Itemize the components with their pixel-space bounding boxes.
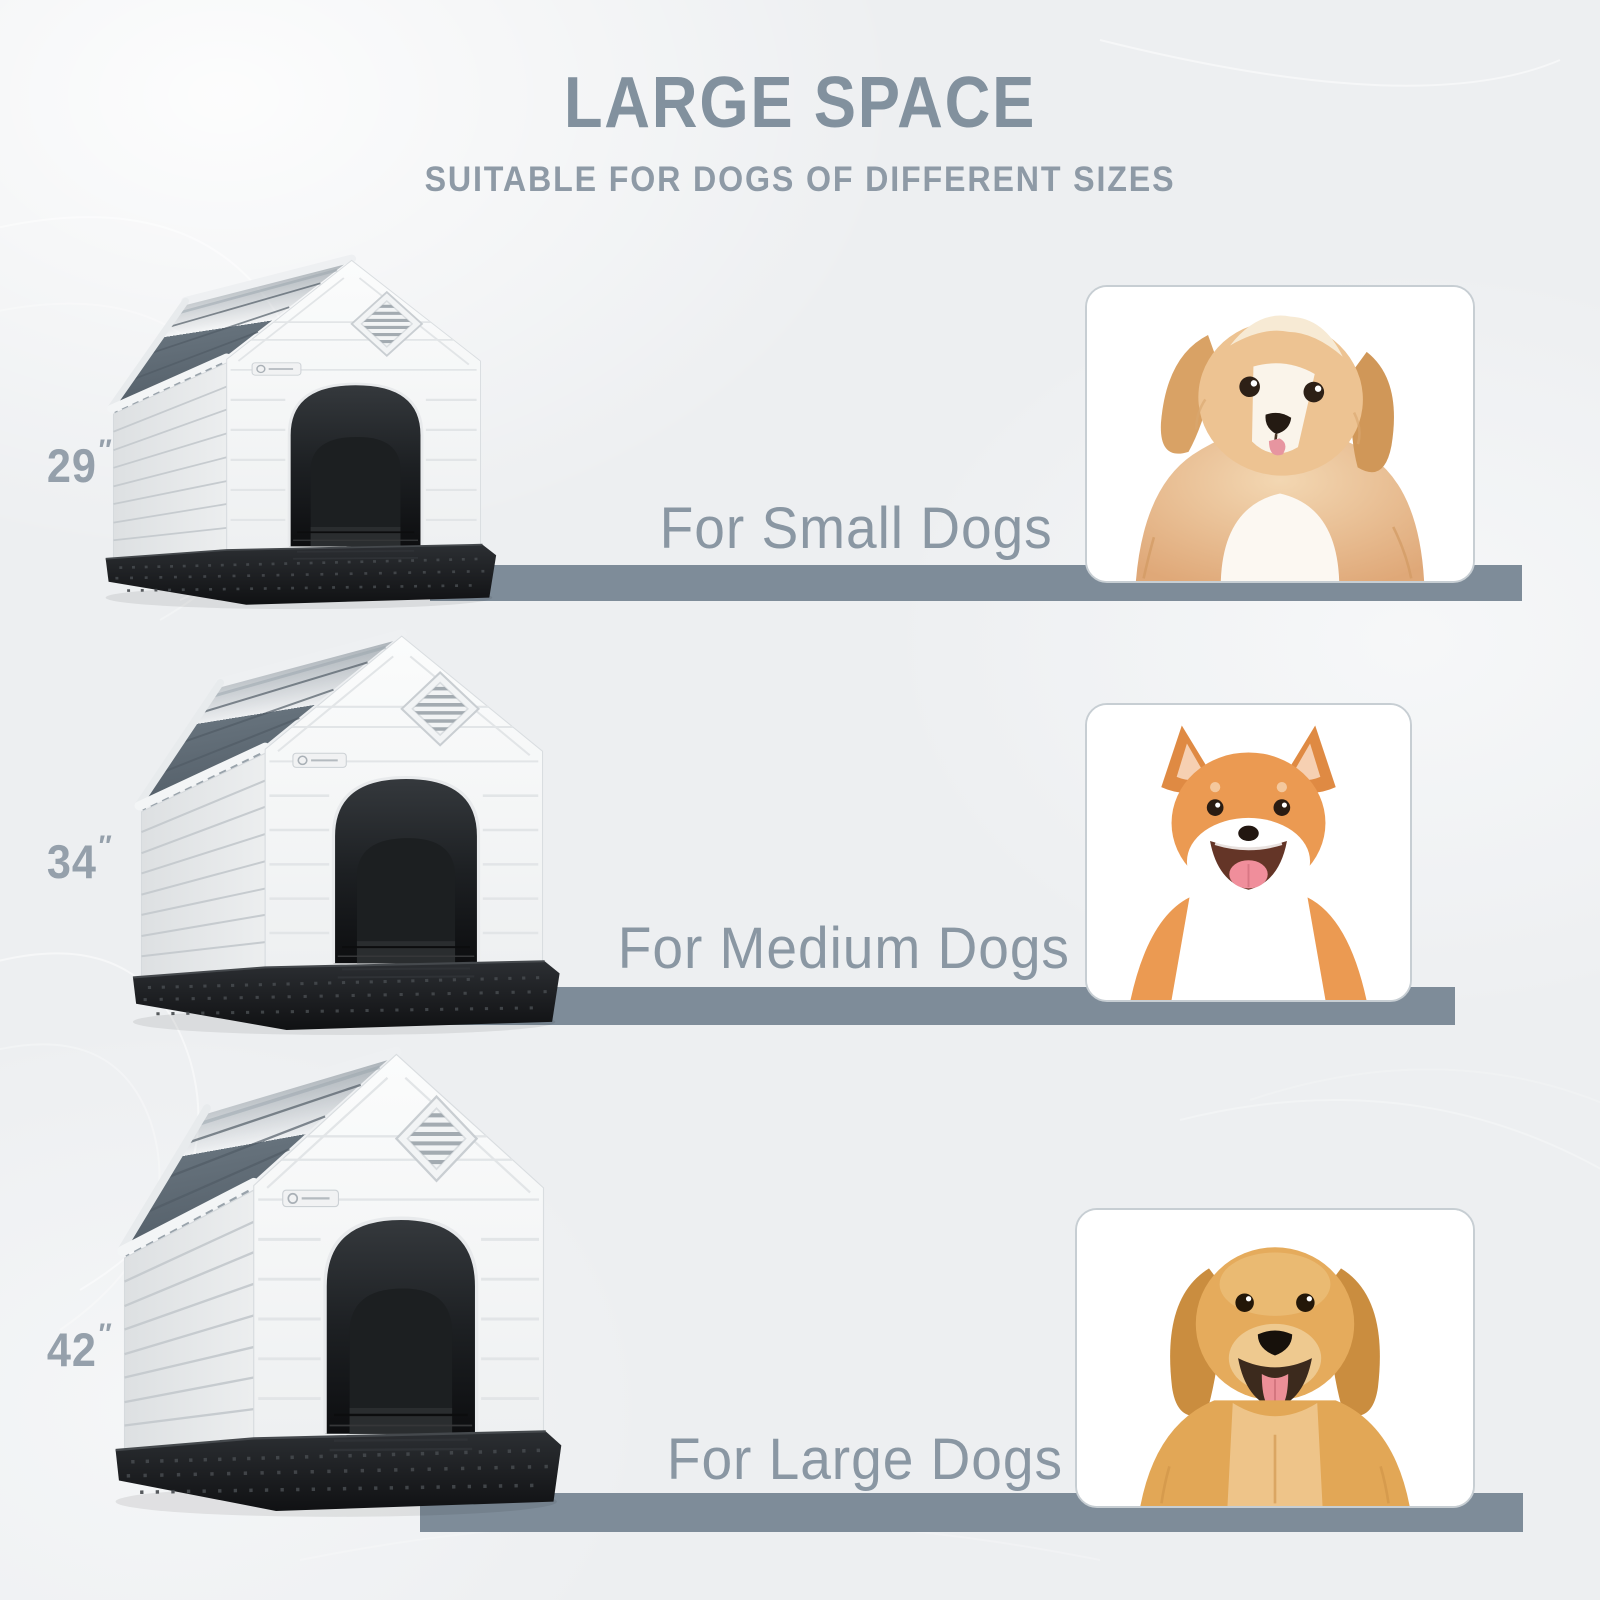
inch-mark: ″ [99,830,113,863]
dog-photo-card-large [1075,1208,1475,1508]
dog-house-34-inch-illustration [118,622,566,1036]
row-caption-medium-dogs: For Medium Dogs [618,920,1070,978]
size-value: 34 [47,835,97,888]
small-fluffy-puppy-photo [1087,287,1473,581]
row-caption-small-dogs: For Small Dogs [660,500,1053,558]
dog-photo-card-small [1085,285,1475,583]
size-value: 29 [47,439,97,492]
product-infographic: LARGE SPACE SUITABLE FOR DOGS OF DIFFERE… [0,0,1600,1600]
size-value: 42 [47,1323,97,1376]
house-height-label-34: 34″ [47,832,113,885]
dog-photo-card-medium [1085,703,1412,1002]
page-title: LARGE SPACE [96,62,1504,144]
dog-house-29-inch-illustration [92,248,502,610]
dog-house-42-inch-illustration [100,1038,568,1518]
golden-retriever-photo [1077,1210,1473,1506]
row-caption-large-dogs: For Large Dogs [667,1431,1063,1489]
page-subtitle: SUITABLE FOR DOGS OF DIFFERENT SIZES [64,160,1536,200]
shiba-inu-photo [1087,705,1410,1000]
